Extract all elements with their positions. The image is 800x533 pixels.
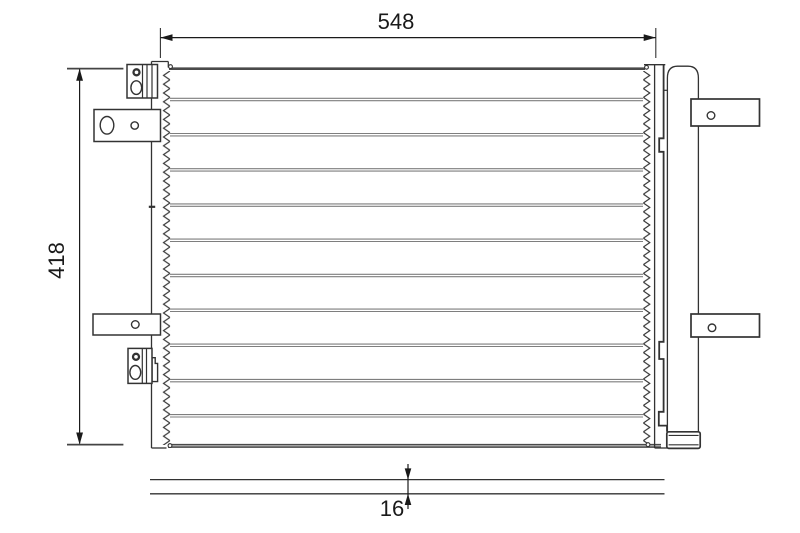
bracket-top-right — [691, 99, 760, 126]
bracket-bottom-right-hole — [708, 324, 716, 332]
dim-width-label: 548 — [378, 9, 415, 34]
dim-depth-label: 16 — [380, 496, 404, 521]
dim-width-arrow-left — [160, 34, 172, 41]
dim-height-arrow-bottom — [76, 433, 83, 445]
bracket-bottom-left-pin-hole — [133, 354, 139, 360]
condenser-core — [162, 65, 661, 448]
dim-width-arrow-right — [644, 34, 656, 41]
technical-drawing-page: 548 418 16 — [0, 0, 800, 533]
dim-depth-arrow-up — [405, 494, 412, 505]
dimension-depth: 16 — [380, 464, 412, 521]
bracket-middle-left-hole — [132, 321, 140, 329]
dim-depth-arrow-down — [405, 468, 412, 479]
left-fin-serration — [162, 71, 170, 445]
dimension-width: 548 — [160, 9, 655, 58]
bracket-top-left — [127, 65, 158, 99]
bracket-bottom-left — [128, 348, 158, 383]
bracket-upper-left-oval-hole — [100, 117, 114, 135]
corner-clip-bottom-right — [646, 443, 650, 447]
bracket-top-right-hole — [707, 112, 715, 120]
bracket-upper-left-hole — [131, 122, 138, 129]
bracket-bottom-right — [691, 314, 760, 337]
right-tank-right-edge — [659, 65, 667, 432]
right-brackets — [691, 99, 760, 337]
bracket-top-left-oval-hole — [131, 81, 142, 95]
bracket-bottom-left-hook — [152, 358, 158, 382]
core-bottom-plate — [168, 445, 661, 447]
corner-clip-top-left — [169, 65, 173, 69]
condenser-technical-drawing: 548 418 16 — [0, 0, 800, 533]
bracket-upper-left — [94, 110, 161, 142]
side-profile-view — [150, 480, 665, 494]
corner-clip-top-right — [645, 65, 649, 69]
left-brackets — [93, 65, 161, 384]
drier-bottom-fitting — [667, 432, 700, 449]
bracket-middle-left — [93, 314, 161, 335]
right-fin-serration — [643, 71, 651, 445]
bracket-top-left-pin-hole — [134, 69, 140, 75]
dim-height-label: 418 — [44, 242, 69, 279]
dim-height-arrow-top — [76, 69, 83, 81]
corner-clip-bottom-left — [168, 444, 172, 448]
bracket-bottom-left-oval-hole — [130, 366, 141, 380]
core-tubes — [170, 98, 643, 417]
